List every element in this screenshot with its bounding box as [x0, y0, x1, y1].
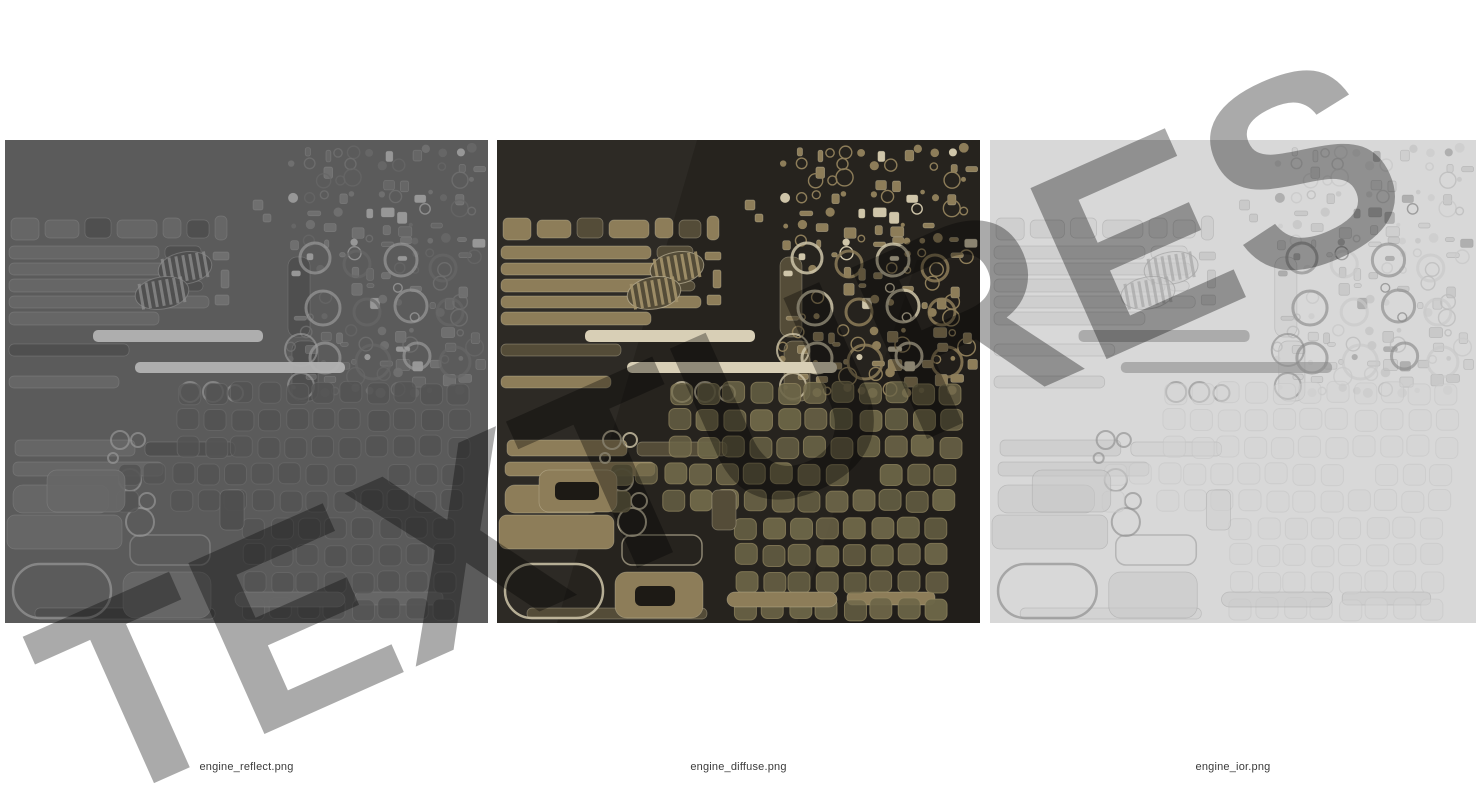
texture-image-diffuse	[497, 140, 980, 623]
texture-filename-reflect: engine_reflect.png	[5, 761, 488, 773]
texture-panel-ior	[990, 140, 1476, 623]
texture-filename-diffuse: engine_diffuse.png	[497, 761, 980, 773]
texture-image-ior	[990, 140, 1476, 623]
texture-panel-diffuse	[497, 140, 980, 623]
texture-filename-ior: engine_ior.png	[990, 761, 1476, 773]
texture-image-reflect	[5, 140, 488, 623]
texture-preview-page: engine_reflect.png engine_diffuse.png en…	[0, 0, 1480, 800]
texture-panel-reflect	[5, 140, 488, 623]
